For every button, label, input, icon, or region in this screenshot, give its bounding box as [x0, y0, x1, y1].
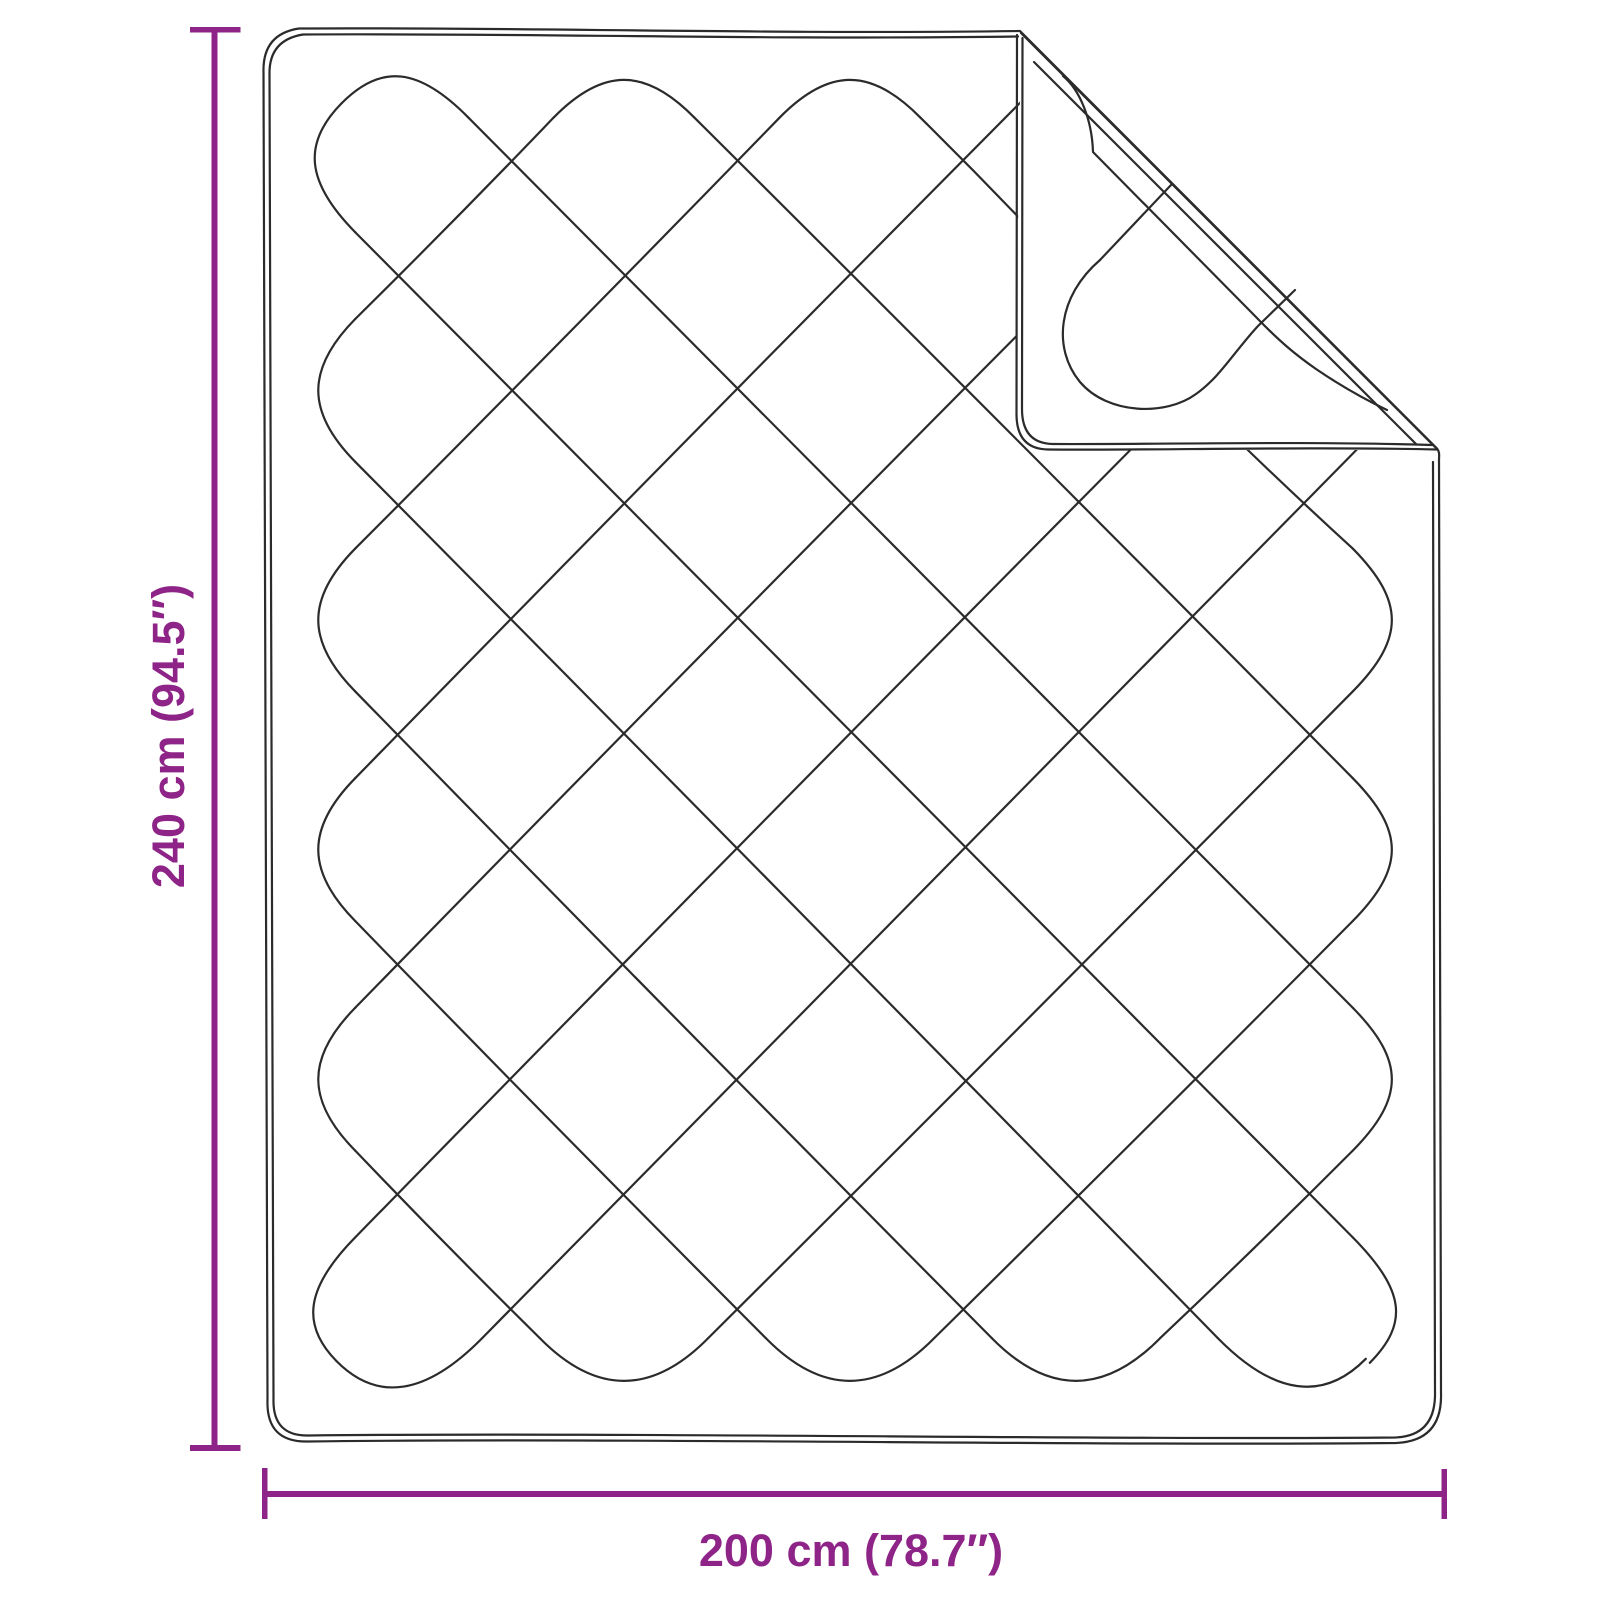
svg-text:240 cm (94.5″): 240 cm (94.5″)	[143, 584, 194, 888]
svg-text:200 cm (78.7″): 200 cm (78.7″)	[699, 1525, 1003, 1576]
